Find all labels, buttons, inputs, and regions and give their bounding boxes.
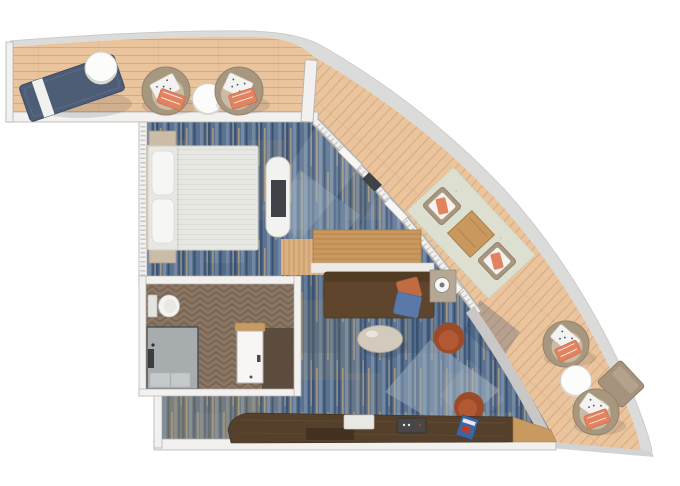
coffee-machine-button-1 — [403, 424, 405, 426]
toilet-tank — [148, 295, 157, 317]
lower-left-wall — [154, 390, 162, 448]
coffee-table — [358, 326, 403, 353]
door-hinge — [250, 376, 253, 379]
table-lamp-center — [440, 283, 445, 288]
door-header-shelf — [235, 323, 265, 331]
coffee-machine — [397, 418, 426, 433]
toilet-seat — [164, 299, 177, 313]
desk-ledge — [311, 263, 434, 273]
coffee-table-highlight — [366, 331, 378, 338]
bathroom — [146, 283, 295, 390]
desk-grain — [313, 230, 421, 263]
left-balcony-wall — [6, 42, 13, 122]
bathroom-dark-nook — [262, 328, 294, 390]
serving-tray — [344, 415, 374, 429]
lounge-chair-right-lower — [573, 389, 619, 435]
shower-control-knob — [151, 343, 154, 346]
counter-sink-inset — [306, 428, 354, 440]
shower-mat-1 — [150, 373, 170, 387]
coffee-machine-light — [419, 424, 421, 426]
shower-fixture — [148, 349, 154, 368]
patio-armchair-right — [215, 67, 263, 115]
lounge-chair-right-upper — [543, 321, 589, 367]
patio-armchair-left — [142, 67, 190, 115]
sofa-pillow-blue — [393, 292, 422, 319]
shower-mat-2 — [171, 373, 190, 387]
suite-floorplan — [0, 0, 680, 486]
bed-pillow-upper — [152, 151, 174, 195]
door-handle — [257, 355, 261, 362]
bed-pillow-lower — [152, 199, 174, 243]
duvet-texture — [176, 148, 256, 248]
coffee-machine-button-2 — [408, 424, 410, 426]
tv — [271, 180, 286, 217]
bedroom-window-wall — [139, 122, 147, 284]
